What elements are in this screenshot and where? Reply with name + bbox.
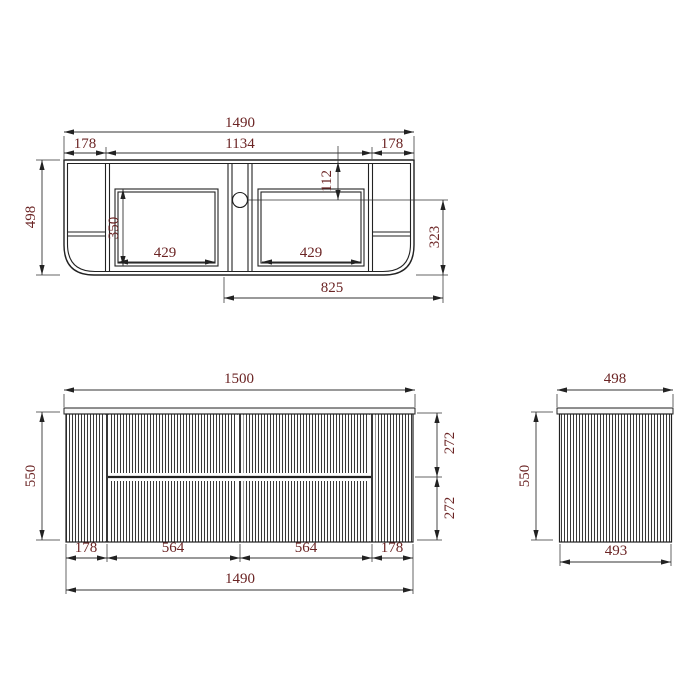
dim-plan-center-right-span: 825: [321, 280, 344, 296]
dim-front-cabinet-width: 1490: [225, 571, 255, 587]
dim-front-right-door: 564: [295, 540, 318, 556]
plan-basin-cutouts: [115, 189, 364, 266]
plan-extension-lines: [36, 136, 448, 303]
plan-view: 1490 178 1134 178 498 112 350 323 429 42…: [23, 115, 448, 303]
technical-drawing-canvas: 1490 178 1134 178 498 112 350 323 429 42…: [0, 0, 700, 700]
dim-plan-cutout-left-width: 429: [154, 245, 177, 261]
dim-plan-depth: 498: [23, 206, 39, 229]
dim-plan-overall-width: 1490: [225, 115, 255, 131]
faucet-hole: [233, 193, 248, 208]
side-countertop: [557, 408, 673, 414]
dim-side-height: 550: [517, 465, 533, 488]
dim-front-left-end: 178: [75, 540, 98, 556]
technical-drawing-page: 1490 178 1134 178 498 112 350 323 429 42…: [0, 0, 700, 700]
dim-plan-inner-span: 1134: [225, 136, 255, 152]
plan-dimension-lines: [42, 132, 443, 298]
side-view: 498 550 493: [517, 371, 673, 566]
dim-plan-cutout-right-width: 429: [300, 245, 323, 261]
dim-side-cabinet-depth: 493: [605, 543, 628, 559]
dim-plan-right-end: 178: [381, 136, 404, 152]
front-view: 1500 550 272 272 178 564 564 178 1490: [23, 371, 458, 594]
dim-plan-left-end: 178: [74, 136, 97, 152]
dim-front-height: 550: [23, 465, 39, 488]
dim-front-left-door: 564: [162, 540, 185, 556]
dim-front-right-end: 178: [381, 540, 404, 556]
dim-side-top-depth: 498: [604, 371, 627, 387]
dim-front-top-width: 1500: [224, 371, 254, 387]
dim-plan-faucet-setback: 112: [319, 170, 335, 192]
front-countertop: [64, 408, 415, 414]
dim-plan-right-offset: 323: [427, 226, 443, 249]
side-fluted-body: [560, 414, 672, 542]
dim-front-upper-drawer: 272: [442, 432, 458, 455]
dim-plan-cutout-depth: 350: [106, 217, 122, 240]
dim-front-lower-drawer: 272: [442, 497, 458, 520]
